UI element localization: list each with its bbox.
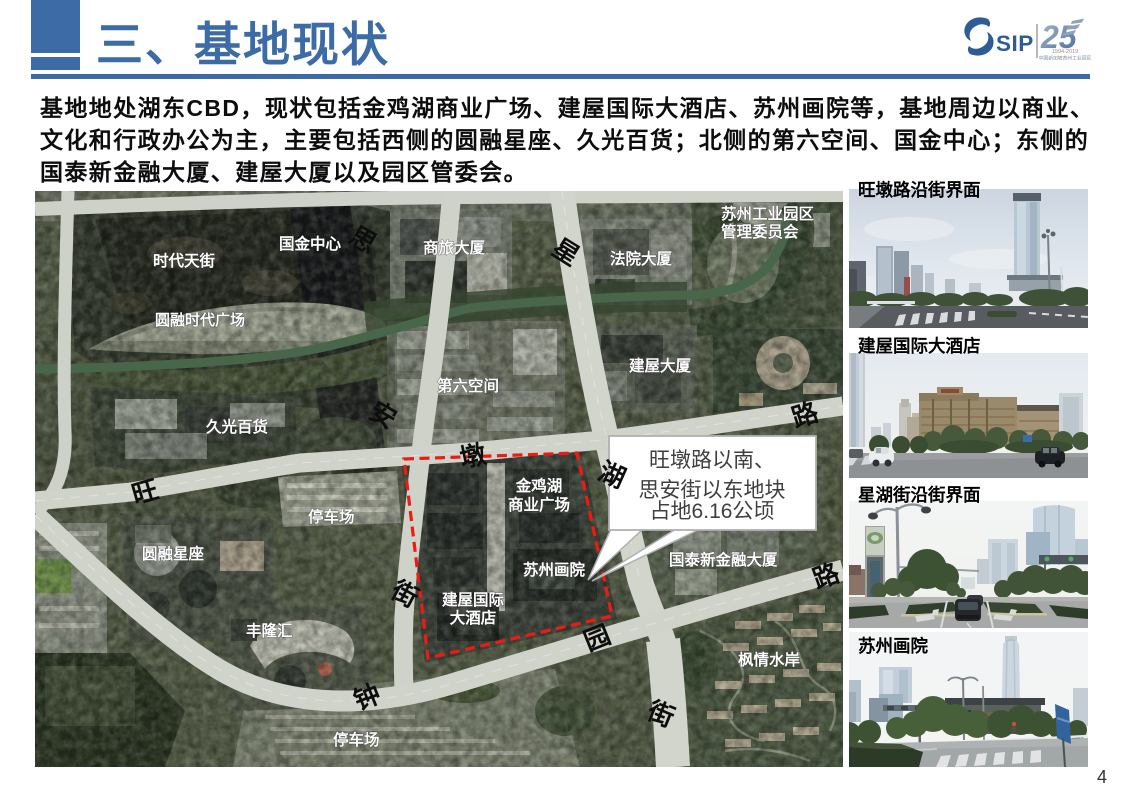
svg-text:SIP: SIP <box>996 31 1034 56</box>
svg-text:圆融星座: 圆融星座 <box>142 544 205 563</box>
svg-text:金鸡湖: 金鸡湖 <box>515 476 563 495</box>
svg-text:停车场: 停车场 <box>308 507 355 526</box>
svg-text:建屋大厦: 建屋大厦 <box>629 356 692 375</box>
svg-text:建屋国际: 建屋国际 <box>442 591 505 609</box>
svg-text:中国新加坡苏州工业园区: 中国新加坡苏州工业园区 <box>1039 55 1092 62</box>
svg-text:国金中心: 国金中心 <box>279 234 342 253</box>
svg-text:苏州画院: 苏州画院 <box>523 560 586 579</box>
svg-text:大酒店: 大酒店 <box>450 608 497 627</box>
svg-text:国泰新金融大厦: 国泰新金融大厦 <box>669 550 778 569</box>
svg-text:旺墩路以南、: 旺墩路以南、 <box>649 449 775 472</box>
svg-text:第六空间: 第六空间 <box>437 376 499 395</box>
svg-text:思安街以东地块: 思安街以东地块 <box>639 479 786 502</box>
svg-text:1994-2019: 1994-2019 <box>1052 49 1078 55</box>
svg-text:商业广场: 商业广场 <box>508 495 570 514</box>
svg-text:占地6.16公顷: 占地6.16公顷 <box>650 500 775 523</box>
svg-text:丰隆汇: 丰隆汇 <box>246 621 293 640</box>
svg-text:圆融时代广场: 圆融时代广场 <box>155 311 245 329</box>
svg-text:时代天街: 时代天街 <box>153 251 216 270</box>
svg-text:苏州工业园区: 苏州工业园区 <box>721 204 815 223</box>
svg-text:商旅大厦: 商旅大厦 <box>423 238 486 257</box>
svg-text:久光百货: 久光百货 <box>206 417 268 436</box>
svg-text:管理委员会: 管理委员会 <box>721 222 799 241</box>
svg-text:停车场: 停车场 <box>333 730 380 749</box>
svg-text:法院大厦: 法院大厦 <box>610 249 673 268</box>
svg-text:枫情水岸: 枫情水岸 <box>738 650 801 669</box>
